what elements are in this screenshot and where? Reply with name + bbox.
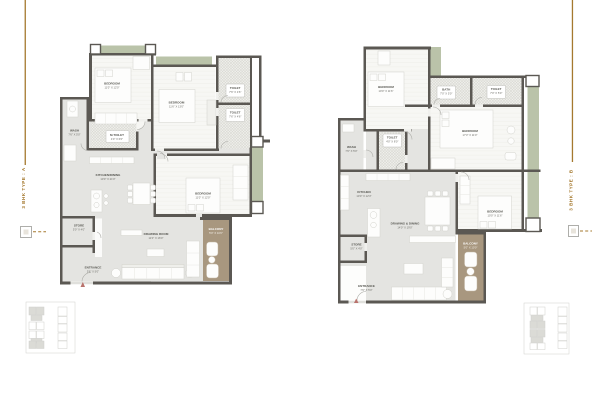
svg-text:5'0" X 4'0": 5'0" X 4'0" <box>73 228 85 232</box>
svg-text:BEDROOM: BEDROOM <box>487 210 503 214</box>
svg-text:BEDROOM: BEDROOM <box>104 82 120 86</box>
svg-text:7'6" X 4'6": 7'6" X 4'6" <box>229 90 241 94</box>
svg-text:5'0" X 10'0": 5'0" X 10'0" <box>464 246 478 250</box>
svg-text:3 BHK TYPE : A: 3 BHK TYPE : A <box>21 167 26 208</box>
svg-text:BATH: BATH <box>442 88 450 92</box>
svg-text:11'6" X 13'0": 11'6" X 13'0" <box>169 105 184 109</box>
svg-text:7'6" X 4'6": 7'6" X 4'6" <box>229 115 241 119</box>
svg-text:3 BHK TYPE : B: 3 BHK TYPE : B <box>568 169 573 211</box>
svg-text:TOILET: TOILET <box>230 111 241 115</box>
svg-text:M.TOILET: M.TOILET <box>110 133 124 137</box>
svg-text:7'6" X 5'0": 7'6" X 5'0" <box>360 288 372 292</box>
svg-text:10'0" X 21'0": 10'0" X 21'0" <box>100 177 115 181</box>
svg-text:BALCONY: BALCONY <box>463 242 478 246</box>
svg-text:BEDROOM: BEDROOM <box>378 85 394 89</box>
svg-text:KITCHEN: KITCHEN <box>357 190 370 194</box>
svg-text:17'3" X 11'0": 17'3" X 11'0" <box>463 133 478 137</box>
svg-text:7'0" X 5'0": 7'0" X 5'0" <box>440 92 452 96</box>
svg-text:STORE: STORE <box>74 224 84 228</box>
svg-text:11'0" X 12'0": 11'0" X 12'0" <box>105 86 120 90</box>
svg-text:5'6" X 5'0": 5'6" X 5'0" <box>87 270 99 274</box>
svg-text:4'0" X 8'0": 4'0" X 8'0" <box>386 140 398 144</box>
svg-text:11'0" X 12'0": 11'0" X 12'0" <box>196 196 211 200</box>
svg-text:DRAWING ROOM: DRAWING ROOM <box>144 232 169 236</box>
svg-text:WASH: WASH <box>347 145 356 149</box>
svg-text:7'0" X 5'0": 7'0" X 5'0" <box>490 91 502 95</box>
svg-text:TOILET: TOILET <box>491 87 502 91</box>
svg-text:TOILET: TOILET <box>230 86 241 90</box>
svg-text:7'6" X 5'0": 7'6" X 5'0" <box>68 133 80 137</box>
svg-text:ENTRANCE: ENTRANCE <box>358 284 375 288</box>
svg-text:WASH: WASH <box>70 129 79 133</box>
svg-text:STORE: STORE <box>351 243 361 247</box>
svg-text:BEDROOM: BEDROOM <box>195 192 211 196</box>
svg-text:BEDROOM: BEDROOM <box>462 129 478 133</box>
svg-text:ENTRANCE: ENTRANCE <box>85 266 102 270</box>
svg-text:7'6" X 5'0": 7'6" X 5'0" <box>345 149 357 153</box>
svg-text:11'0" X 16'0": 11'0" X 16'0" <box>149 236 164 240</box>
svg-text:DRAWING & DINING: DRAWING & DINING <box>391 222 420 226</box>
svg-text:KITCHEN/DINING: KITCHEN/DINING <box>96 173 121 177</box>
svg-text:5'0" X 10'0": 5'0" X 10'0" <box>209 231 223 235</box>
svg-text:10'0" X 12'3": 10'0" X 12'3" <box>356 194 371 198</box>
svg-text:TOILET: TOILET <box>387 136 398 140</box>
svg-text:4'0" X 6'0": 4'0" X 6'0" <box>111 137 123 141</box>
svg-text:14'0" X 19'0": 14'0" X 19'0" <box>397 226 412 230</box>
svg-text:BEDROOM: BEDROOM <box>169 101 185 105</box>
svg-text:5'0" X 4'0": 5'0" X 4'0" <box>350 247 362 251</box>
svg-text:BALCONY: BALCONY <box>209 227 224 231</box>
svg-text:10'0" X 11'6": 10'0" X 11'6" <box>488 214 503 218</box>
svg-text:10'0" X 11'6": 10'0" X 11'6" <box>379 89 394 93</box>
